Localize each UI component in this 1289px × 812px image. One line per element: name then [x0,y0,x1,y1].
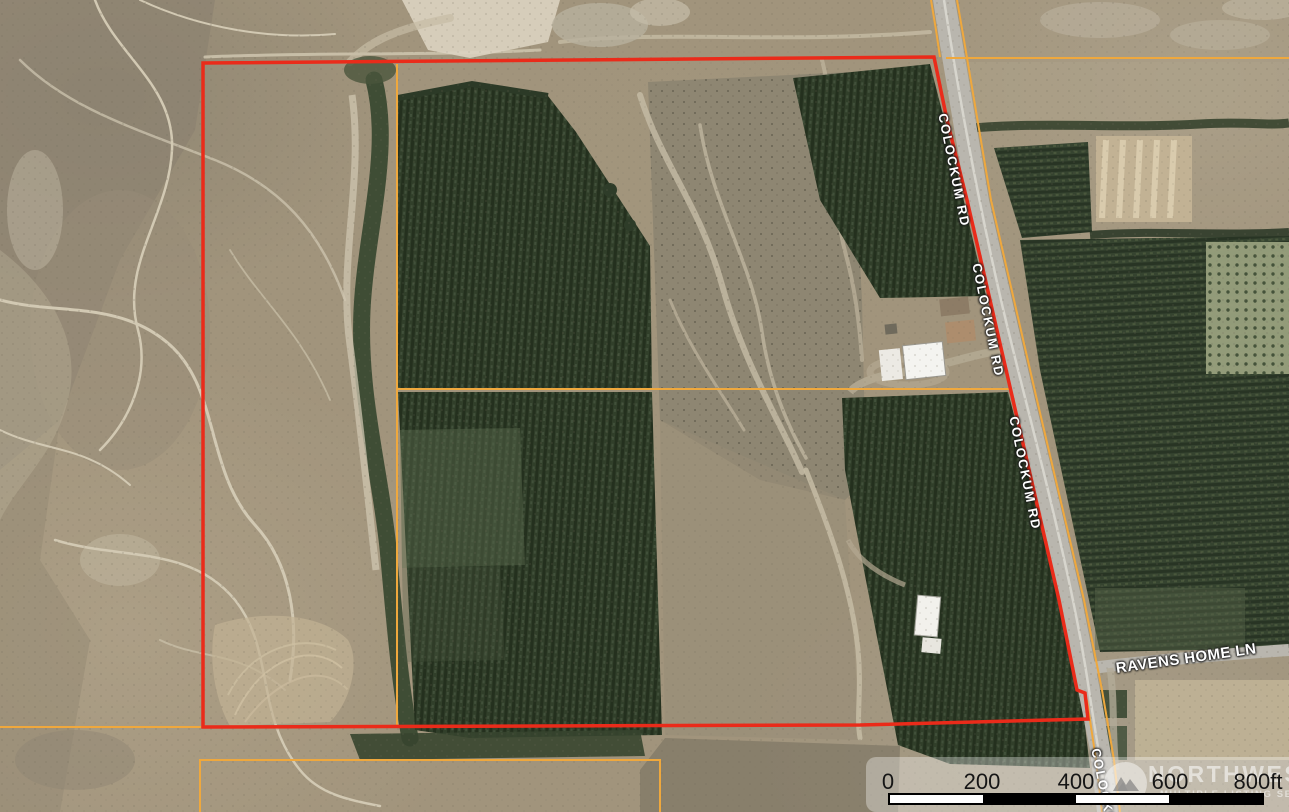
aerial-map: COLOCKUM RD COLOCKUM RD COLOCKUM RD COLO… [0,0,1289,812]
scale-tick-600: 600 [1152,769,1189,795]
scale-bar-panel: NORTHWEST MULTIPLE LISTING SERVICE 0 200… [866,757,1289,812]
scale-segment-3 [1076,795,1169,803]
scale-tick-200: 200 [964,769,1001,795]
scale-segment-2 [983,795,1076,803]
terrain-layer [0,0,1289,812]
scale-segment-4 [1169,795,1262,803]
scale-segment-1 [890,795,983,803]
scale-tick-800ft: 800ft [1234,769,1283,795]
scale-bar [888,793,1264,805]
scale-tick-0: 0 [882,769,894,795]
terrain-noise [0,0,1289,812]
scale-tick-400: 400 [1058,769,1095,795]
